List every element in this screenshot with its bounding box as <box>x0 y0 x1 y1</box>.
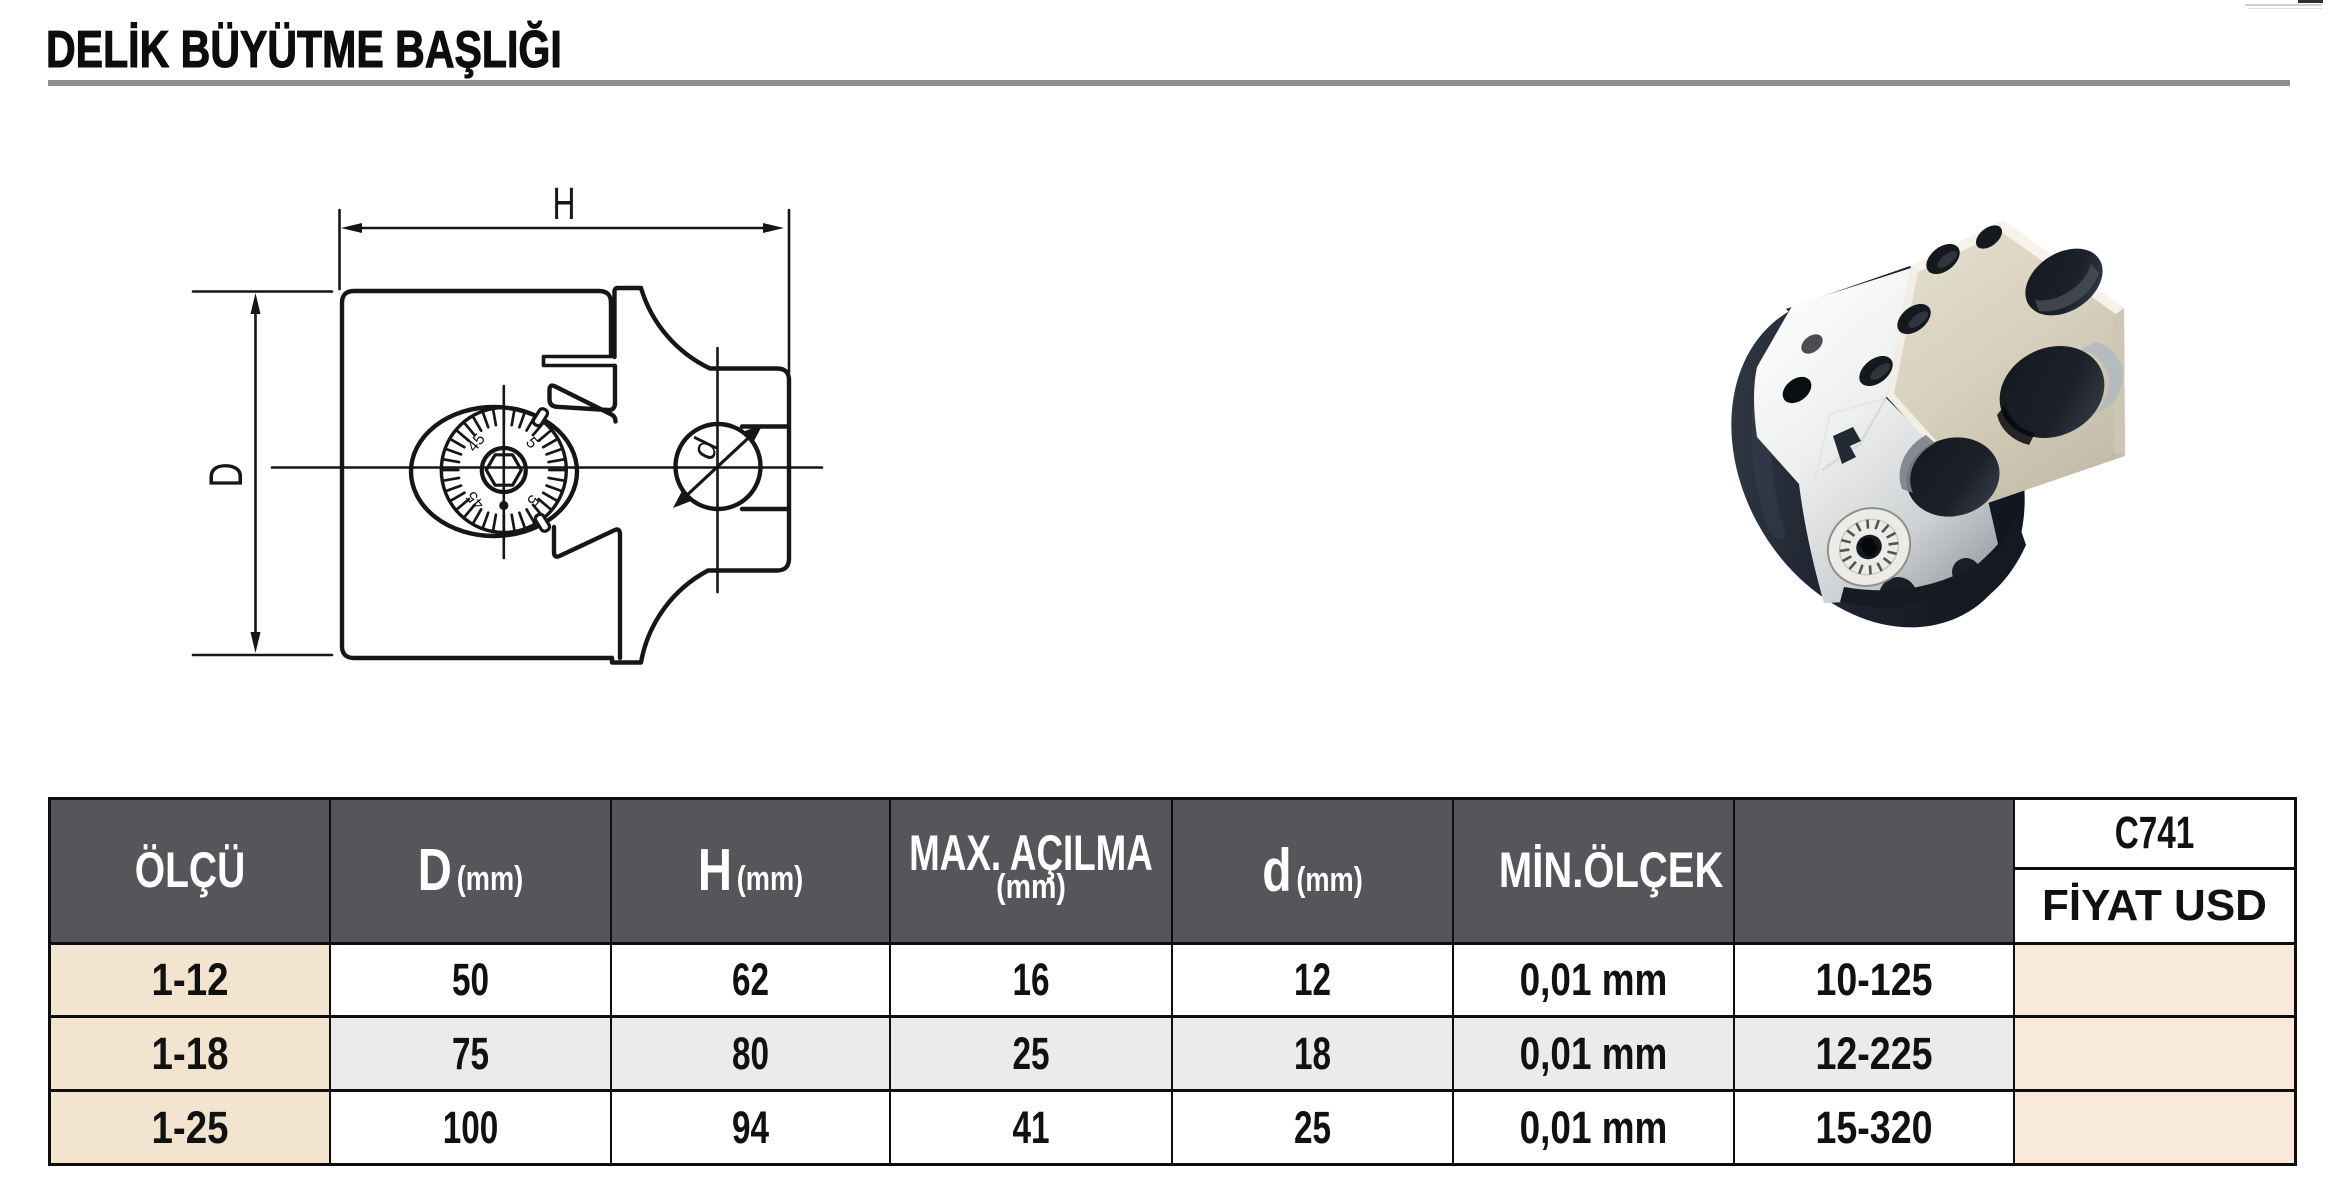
svg-text:45: 45 <box>464 431 489 456</box>
svg-text:d: d <box>684 434 726 463</box>
svg-text:H: H <box>553 178 576 229</box>
svg-text:5: 5 <box>522 434 541 452</box>
svg-text:45: 45 <box>463 488 488 513</box>
svg-text:D: D <box>199 463 252 488</box>
